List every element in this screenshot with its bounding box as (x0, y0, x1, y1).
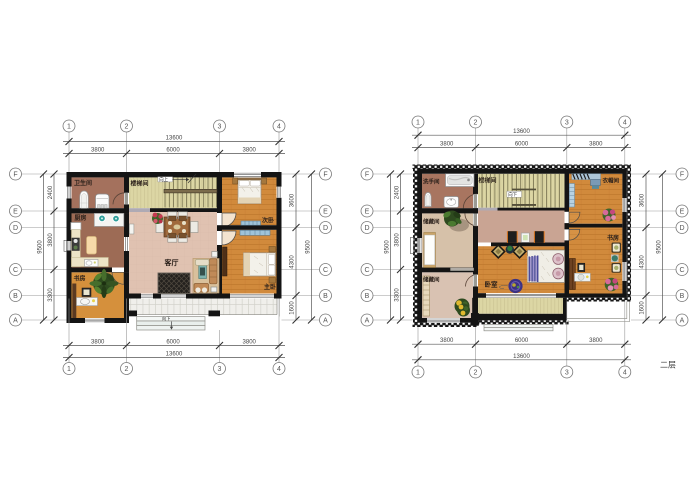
svg-text:A: A (323, 318, 328, 325)
svg-text:3800: 3800 (589, 142, 603, 148)
svg-text:F: F (13, 172, 17, 179)
svg-text:C: C (323, 267, 328, 274)
svg-text:客厅: 客厅 (164, 258, 179, 267)
svg-text:C: C (364, 267, 369, 274)
svg-text:B: B (365, 293, 370, 300)
svg-text:1: 1 (416, 370, 420, 377)
svg-text:向上: 向上 (159, 176, 168, 182)
svg-text:F: F (365, 172, 369, 179)
svg-text:1: 1 (416, 120, 420, 127)
svg-text:2400: 2400 (394, 185, 400, 199)
svg-text:13600: 13600 (166, 136, 183, 142)
svg-text:楼梯间: 楼梯间 (479, 177, 497, 185)
svg-text:洗手间: 洗手间 (423, 178, 440, 186)
svg-text:衣帽间: 衣帽间 (603, 177, 620, 185)
svg-text:B: B (680, 293, 685, 300)
svg-text:1600: 1600 (290, 301, 296, 315)
svg-text:E: E (13, 209, 18, 216)
svg-text:3: 3 (565, 370, 569, 377)
svg-text:D: D (679, 225, 684, 232)
svg-text:6000: 6000 (515, 338, 529, 344)
svg-text:书房: 书房 (607, 234, 619, 242)
svg-text:向下: 向下 (162, 315, 170, 322)
svg-text:3: 3 (218, 366, 222, 373)
svg-text:4: 4 (277, 366, 281, 373)
svg-text:A: A (680, 318, 685, 325)
svg-text:二层: 二层 (660, 361, 676, 370)
svg-text:2: 2 (474, 370, 478, 377)
svg-text:3600: 3600 (290, 193, 296, 207)
svg-text:2: 2 (125, 366, 129, 373)
svg-text:3800: 3800 (91, 340, 105, 346)
svg-text:13600: 13600 (513, 129, 530, 135)
svg-text:卫生间: 卫生间 (74, 179, 92, 187)
svg-text:4: 4 (277, 124, 281, 131)
svg-text:主卧: 主卧 (264, 283, 276, 291)
svg-text:3800: 3800 (394, 233, 400, 247)
svg-text:3800: 3800 (48, 233, 54, 247)
svg-text:卧室: 卧室 (485, 280, 499, 289)
svg-text:3800: 3800 (243, 148, 257, 154)
svg-text:3300: 3300 (394, 288, 400, 302)
svg-text:2: 2 (125, 124, 129, 131)
svg-text:2: 2 (474, 120, 478, 127)
svg-text:D: D (323, 225, 328, 232)
svg-text:1: 1 (67, 124, 71, 131)
svg-text:13600: 13600 (166, 352, 183, 358)
svg-text:3: 3 (218, 124, 222, 131)
svg-text:F: F (680, 172, 684, 179)
svg-text:储藏间: 储藏间 (422, 218, 440, 226)
svg-text:6000: 6000 (515, 142, 529, 148)
svg-text:书房: 书房 (74, 275, 86, 283)
svg-text:E: E (323, 209, 328, 216)
svg-text:厨房: 厨房 (75, 214, 87, 222)
svg-text:3800: 3800 (440, 338, 454, 344)
svg-text:C: C (13, 267, 18, 274)
svg-text:4: 4 (623, 370, 627, 377)
svg-text:3800: 3800 (589, 338, 603, 344)
svg-text:4300: 4300 (290, 255, 296, 269)
svg-text:2400: 2400 (48, 185, 54, 199)
svg-text:D: D (13, 225, 18, 232)
svg-text:次卧: 次卧 (262, 217, 274, 225)
svg-text:4: 4 (623, 120, 627, 127)
svg-text:3600: 3600 (640, 193, 646, 207)
svg-text:A: A (13, 318, 18, 325)
svg-text:4300: 4300 (640, 255, 646, 269)
svg-text:9500: 9500 (657, 240, 663, 254)
svg-text:3300: 3300 (48, 288, 54, 302)
svg-text:1600: 1600 (640, 301, 646, 315)
svg-text:1: 1 (67, 366, 71, 373)
svg-text:楼梯间: 楼梯间 (131, 180, 149, 188)
svg-text:3800: 3800 (243, 340, 257, 346)
svg-text:9500: 9500 (384, 240, 390, 254)
svg-text:储藏间: 储藏间 (422, 276, 440, 284)
svg-text:3800: 3800 (440, 142, 454, 148)
svg-text:A: A (365, 318, 370, 325)
svg-text:9500: 9500 (38, 240, 44, 254)
svg-text:6000: 6000 (166, 340, 180, 346)
svg-text:向下: 向下 (508, 191, 517, 198)
svg-text:F: F (323, 172, 327, 179)
svg-text:9500: 9500 (306, 240, 312, 254)
svg-text:3: 3 (565, 120, 569, 127)
svg-text:3800: 3800 (91, 148, 105, 154)
svg-text:E: E (680, 209, 685, 216)
svg-text:C: C (679, 267, 684, 274)
svg-text:13600: 13600 (513, 354, 530, 360)
svg-text:6000: 6000 (166, 148, 180, 154)
svg-text:B: B (323, 293, 328, 300)
svg-text:E: E (365, 209, 370, 216)
svg-text:D: D (364, 225, 369, 232)
svg-text:B: B (13, 293, 18, 300)
